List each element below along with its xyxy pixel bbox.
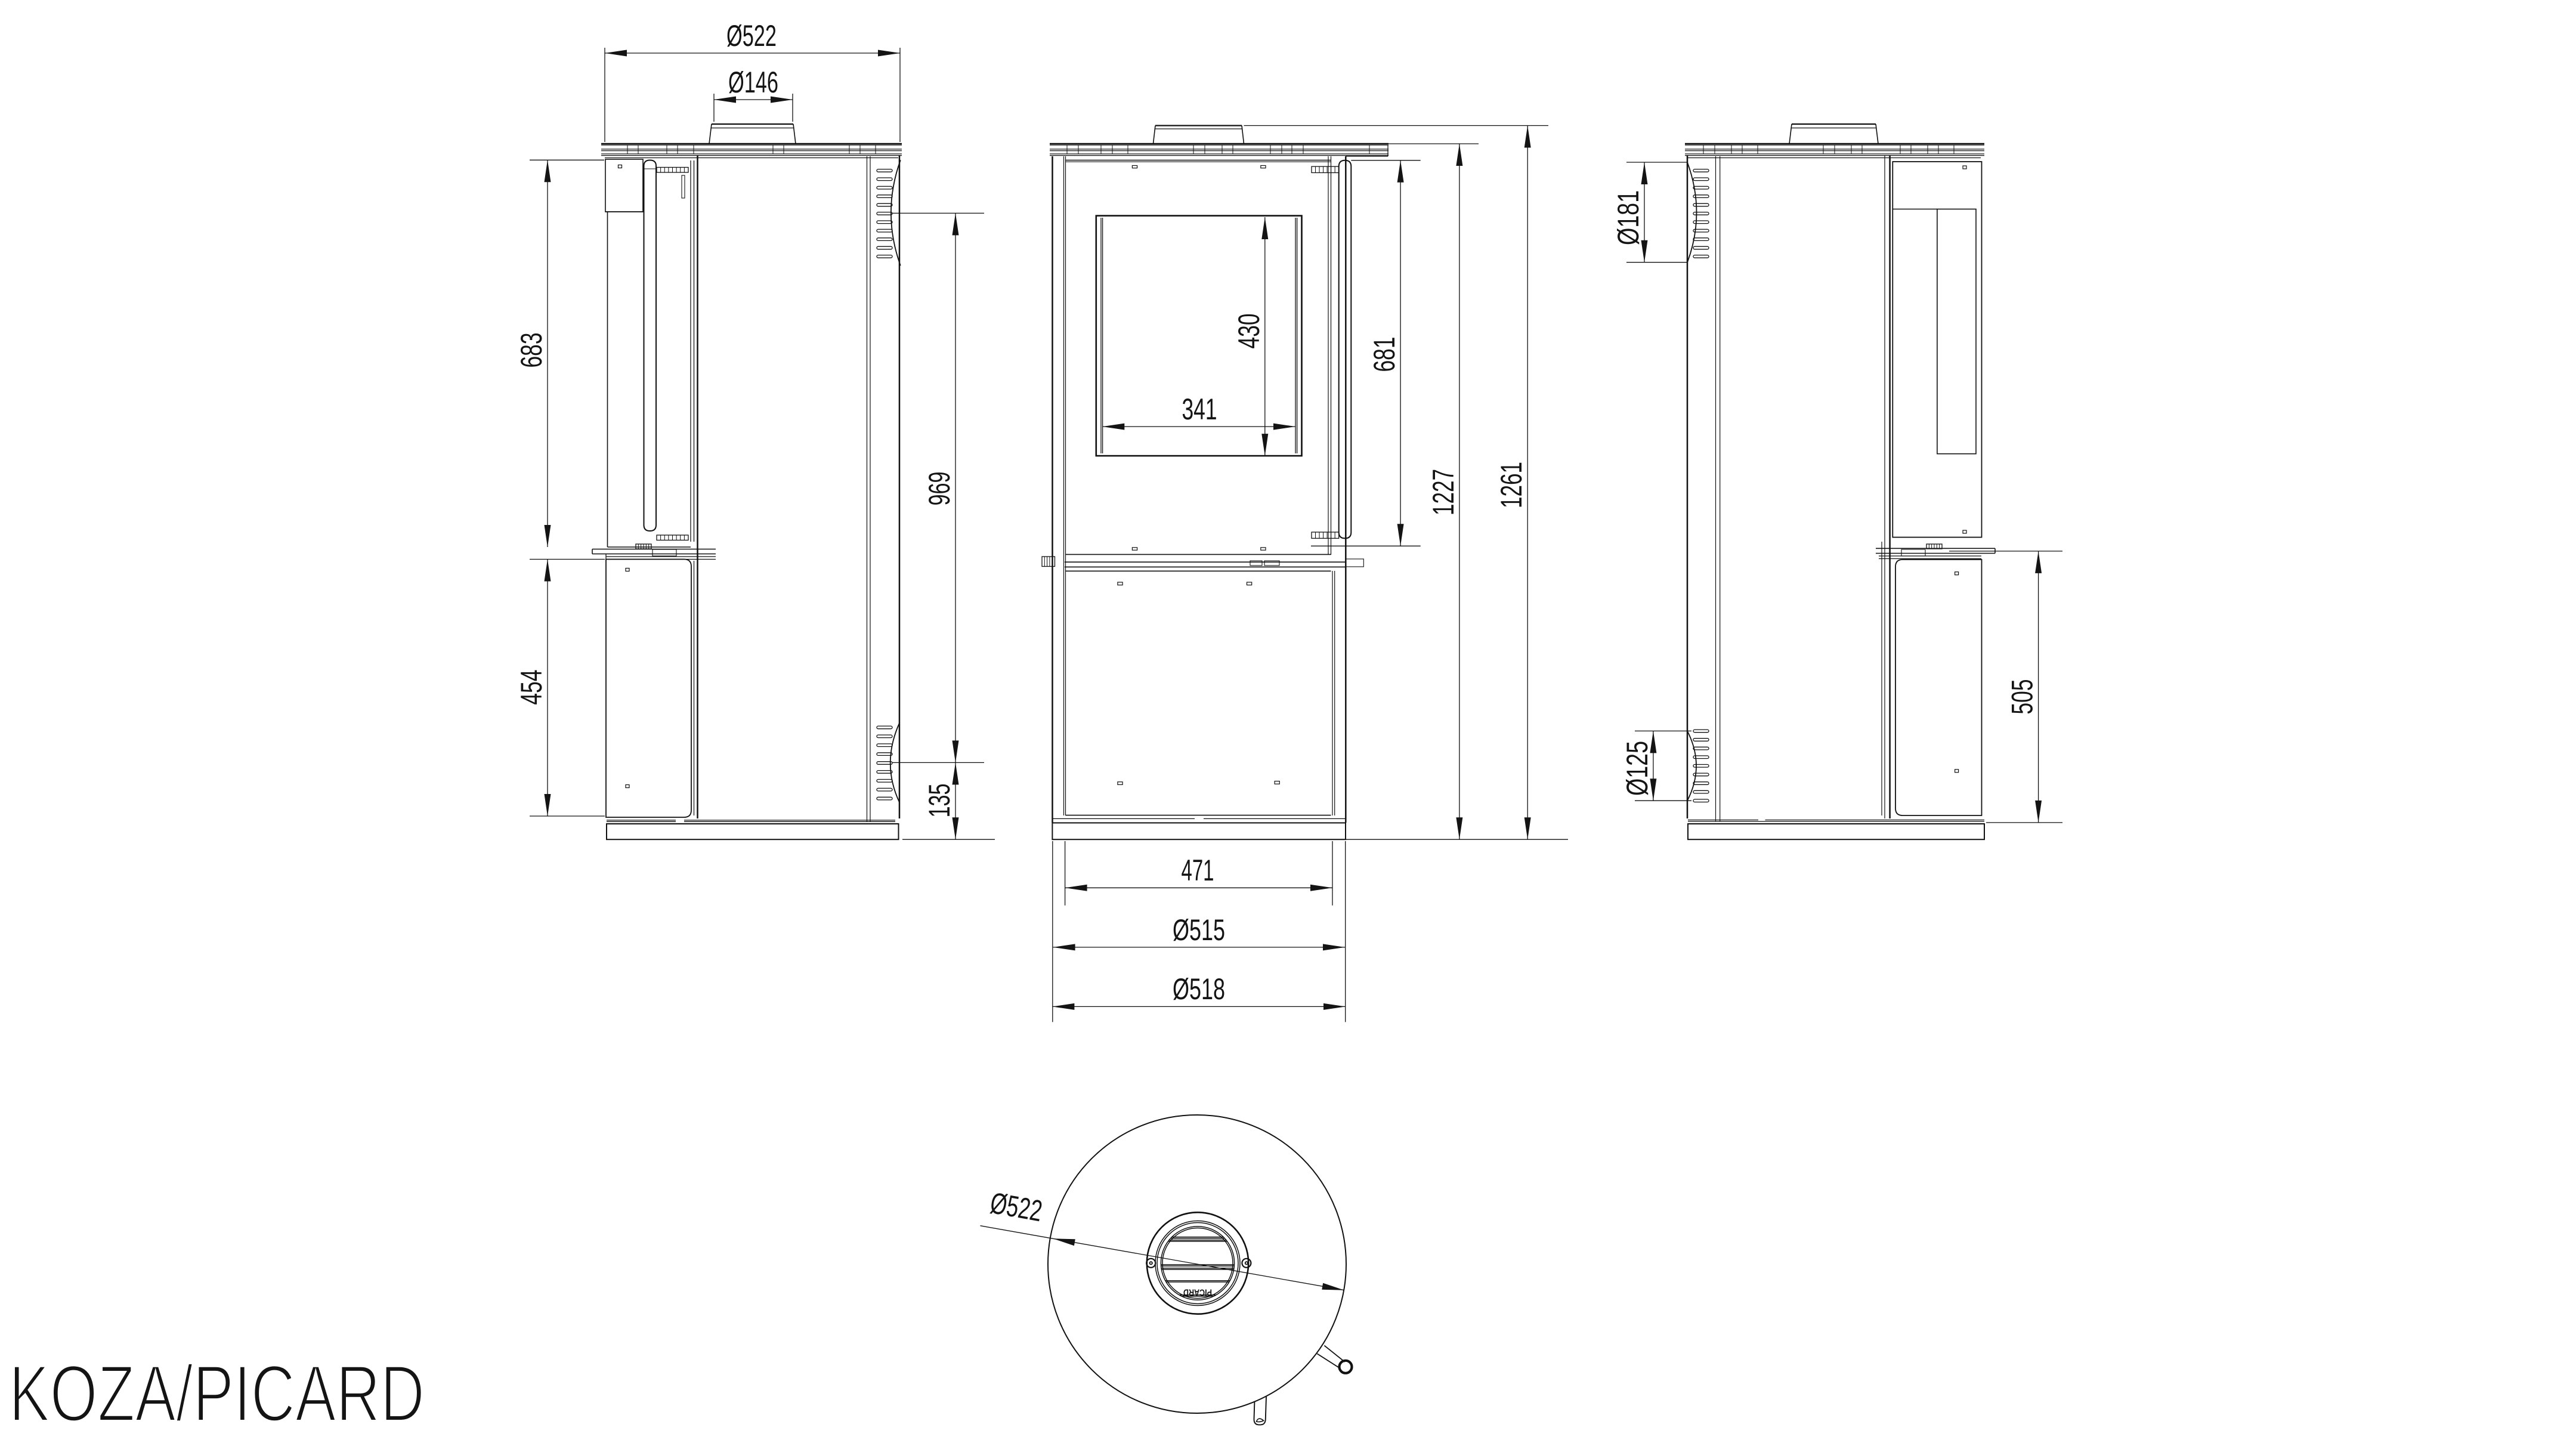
svg-text:430: 430 <box>1232 314 1266 349</box>
svg-text:681: 681 <box>1368 337 1401 372</box>
svg-text:135: 135 <box>923 784 956 818</box>
svg-text:Ø125: Ø125 <box>1621 741 1654 796</box>
svg-text:1261: 1261 <box>1495 462 1528 508</box>
svg-text:PICARD: PICARD <box>1183 1287 1212 1297</box>
svg-text:471: 471 <box>1182 854 1214 887</box>
svg-text:Ø522: Ø522 <box>988 1186 1044 1228</box>
svg-text:341: 341 <box>1182 393 1217 426</box>
svg-text:KOZA/PICARD: KOZA/PICARD <box>9 1349 425 1438</box>
svg-text:683: 683 <box>515 333 548 368</box>
svg-text:454: 454 <box>515 670 548 705</box>
svg-text:1227: 1227 <box>1427 469 1460 515</box>
svg-text:Ø181: Ø181 <box>1612 190 1645 245</box>
svg-text:969: 969 <box>923 472 956 506</box>
svg-text:Ø515: Ø515 <box>1173 913 1225 947</box>
svg-text:Ø522: Ø522 <box>726 19 777 52</box>
svg-text:505: 505 <box>2006 679 2039 715</box>
svg-text:Ø146: Ø146 <box>728 66 778 99</box>
svg-text:Ø518: Ø518 <box>1173 972 1225 1006</box>
